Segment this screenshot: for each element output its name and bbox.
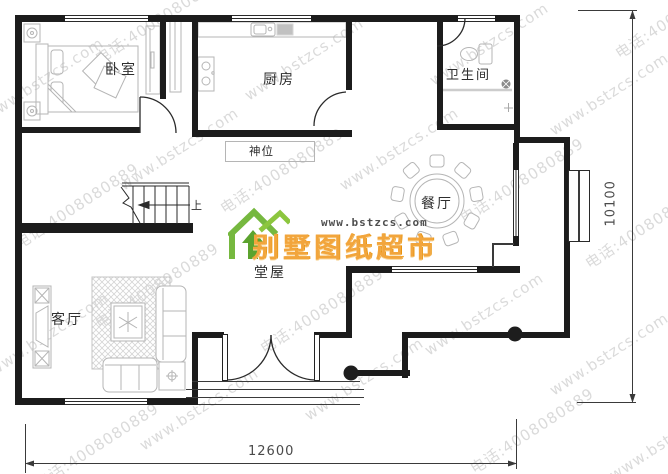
dimension-width-label: 12600: [248, 444, 294, 459]
stair-break-line: [121, 187, 140, 223]
room-label-kitchen: 厨房: [263, 69, 295, 89]
room-label-living: 客厅: [51, 309, 83, 329]
room-label-bathroom: 卫生间: [446, 64, 491, 83]
door-arc-entry-left: [227, 335, 271, 380]
dimension-height-label: 10100: [604, 181, 619, 227]
room-label-bedroom: 卧室: [105, 59, 137, 79]
room-label-dining: 餐厅: [421, 193, 453, 213]
door-arc-bedroom: [140, 97, 176, 133]
floor-plan-canvas: www.bstzcs.com 电话:4008080889 www.bstzcs.…: [0, 0, 668, 474]
stairs-up-label: 上: [191, 197, 202, 213]
door-arc-kitchen: [314, 92, 346, 126]
stairs-icon: [121, 183, 190, 224]
logo-brand-text: 别墅图纸超市: [252, 226, 438, 265]
column-icon: [344, 327, 523, 381]
door-arc-bathroom: [437, 18, 465, 46]
door-arc-entry-right: [271, 335, 315, 380]
room-label-hall: 堂屋: [254, 262, 286, 282]
room-label-shrine: 神位: [249, 143, 274, 159]
